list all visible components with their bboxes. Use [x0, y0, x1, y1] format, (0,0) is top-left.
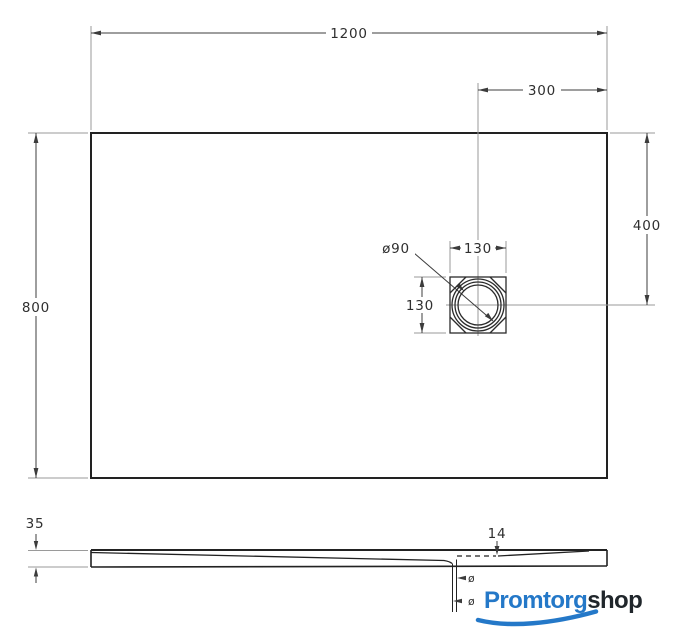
drain-diameter-label: ø90 — [382, 241, 410, 257]
outlet-diameter-label-1: ø — [468, 572, 475, 585]
logo-text: Promtorgshop — [484, 587, 642, 614]
top-view: 1200 300 800 400 130 130 ø90 — [17, 24, 666, 478]
drain-offset-top-label: 400 — [633, 218, 661, 234]
logo-text-primary: Promtorg — [484, 587, 587, 614]
height-dimension-label: 800 — [22, 300, 50, 316]
width-dimension-label: 1200 — [330, 26, 368, 42]
shower-tray-dimension-drawing: 1200 300 800 400 130 130 ø90 — [0, 0, 685, 640]
drain-height-label: 130 — [406, 298, 434, 314]
drain-width-label: 130 — [464, 241, 492, 257]
label-backgrounds — [17, 24, 666, 316]
technical-drawing-page: 1200 300 800 400 130 130 ø90 — [0, 0, 685, 640]
outlet-diameter-label-2: ø — [468, 595, 475, 608]
drain-offset-right-label: 300 — [528, 83, 556, 99]
side-height-dimension: 35 — [26, 516, 88, 583]
promtorgshop-logo: Promtorgshop — [474, 572, 666, 634]
drain-depth-label: 14 — [488, 526, 507, 542]
side-height-label: 35 — [26, 516, 45, 532]
dimension-lines — [36, 33, 647, 478]
